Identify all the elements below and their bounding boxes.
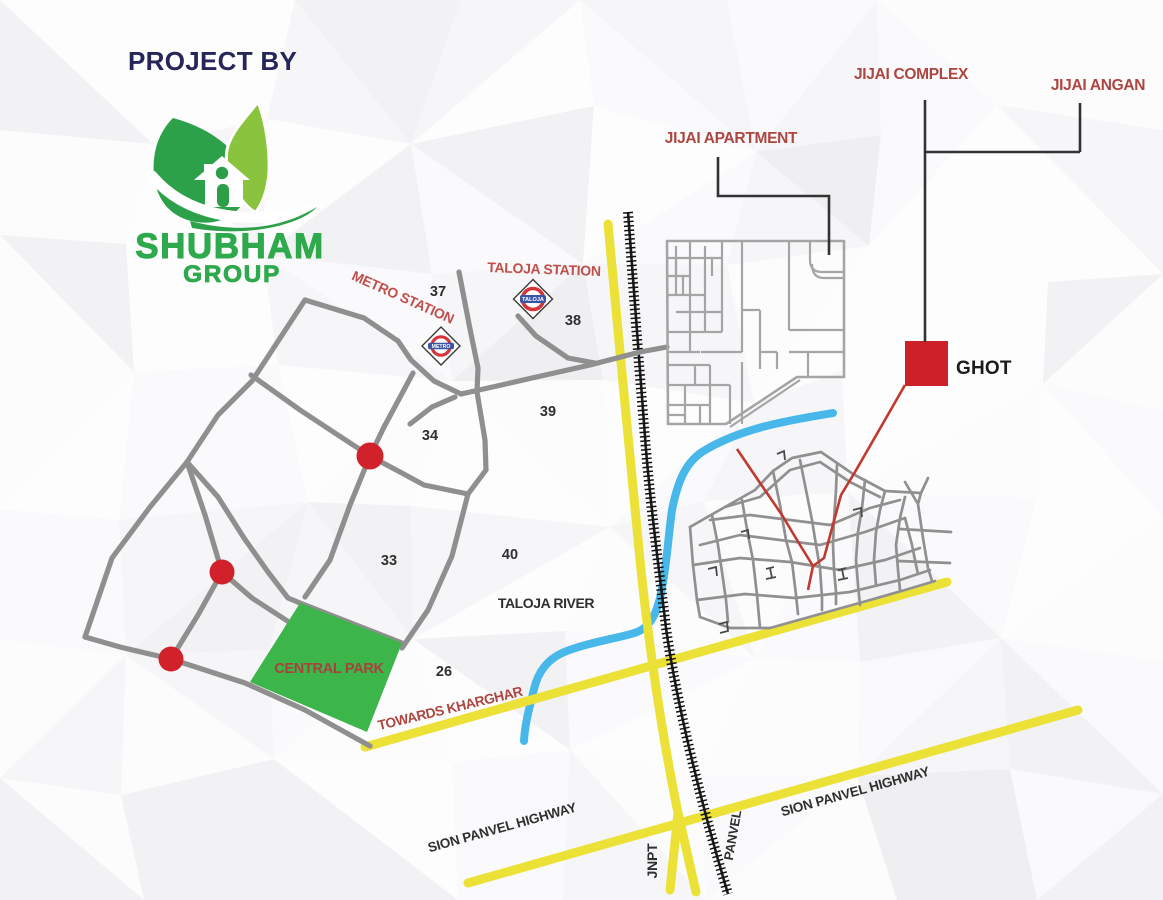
svg-text:JIJAI APARTMENT: JIJAI APARTMENT	[665, 130, 798, 147]
svg-text:METRO: METRO	[432, 344, 451, 350]
svg-text:26: 26	[436, 664, 452, 680]
svg-text:37: 37	[430, 284, 446, 300]
svg-text:40: 40	[502, 547, 518, 563]
svg-text:JIJAI ANGAN: JIJAI ANGAN	[1051, 77, 1145, 94]
svg-text:GROUP: GROUP	[183, 261, 281, 288]
svg-text:33: 33	[381, 553, 397, 569]
svg-text:PROJECT BY: PROJECT BY	[128, 46, 297, 76]
svg-text:GHOT: GHOT	[956, 358, 1012, 379]
svg-text:JIJAI COMPLEX: JIJAI COMPLEX	[854, 66, 969, 83]
svg-text:JNPT: JNPT	[644, 843, 660, 879]
svg-text:TALOJA RIVER: TALOJA RIVER	[498, 595, 595, 611]
svg-text:39: 39	[540, 404, 556, 420]
svg-text:TALOJA: TALOJA	[522, 297, 544, 303]
svg-text:CENTRAL PARK: CENTRAL PARK	[274, 661, 384, 677]
svg-text:34: 34	[422, 428, 438, 444]
svg-text:38: 38	[565, 313, 581, 329]
